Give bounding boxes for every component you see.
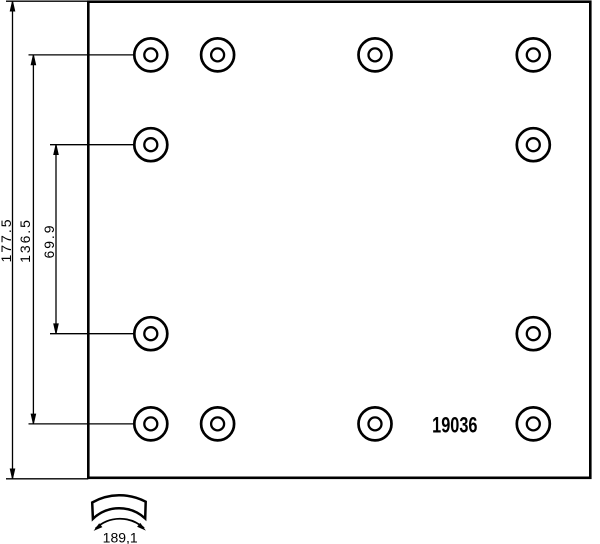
- svg-text:189,1: 189,1: [103, 530, 138, 544]
- svg-text:69.9: 69.9: [41, 224, 57, 259]
- svg-text:177.5: 177.5: [0, 217, 14, 262]
- svg-text:136.5: 136.5: [17, 218, 33, 263]
- svg-text:19036: 19036: [432, 413, 477, 438]
